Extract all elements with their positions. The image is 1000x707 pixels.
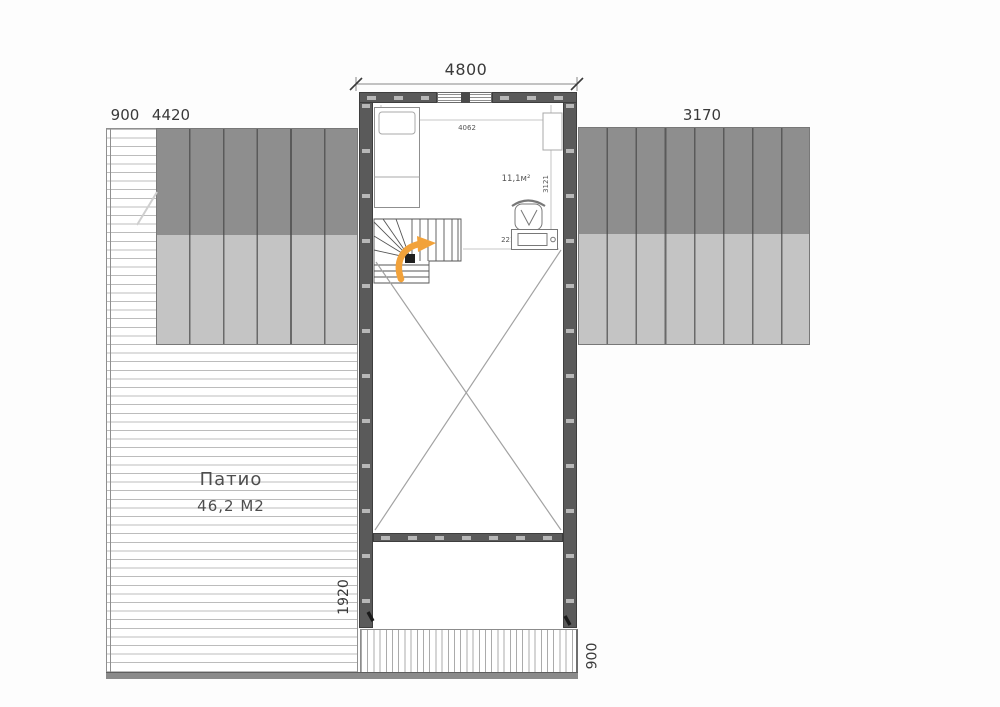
void-x-marks [375, 250, 561, 530]
nightstand [543, 113, 562, 150]
dim-line-4800 [350, 77, 583, 91]
stairs [374, 219, 461, 283]
wall-end-marks [368, 612, 570, 625]
desk-monitor [518, 234, 547, 246]
plan-linework [0, 0, 1000, 707]
stairs-newel-post [405, 254, 415, 263]
roof-slope-tick [137, 192, 157, 225]
office-chair [515, 204, 542, 230]
floor-plan-canvas: 4800 900 4420 3170 1920 900 4062 2321 31… [0, 0, 1000, 707]
bed [375, 108, 420, 208]
